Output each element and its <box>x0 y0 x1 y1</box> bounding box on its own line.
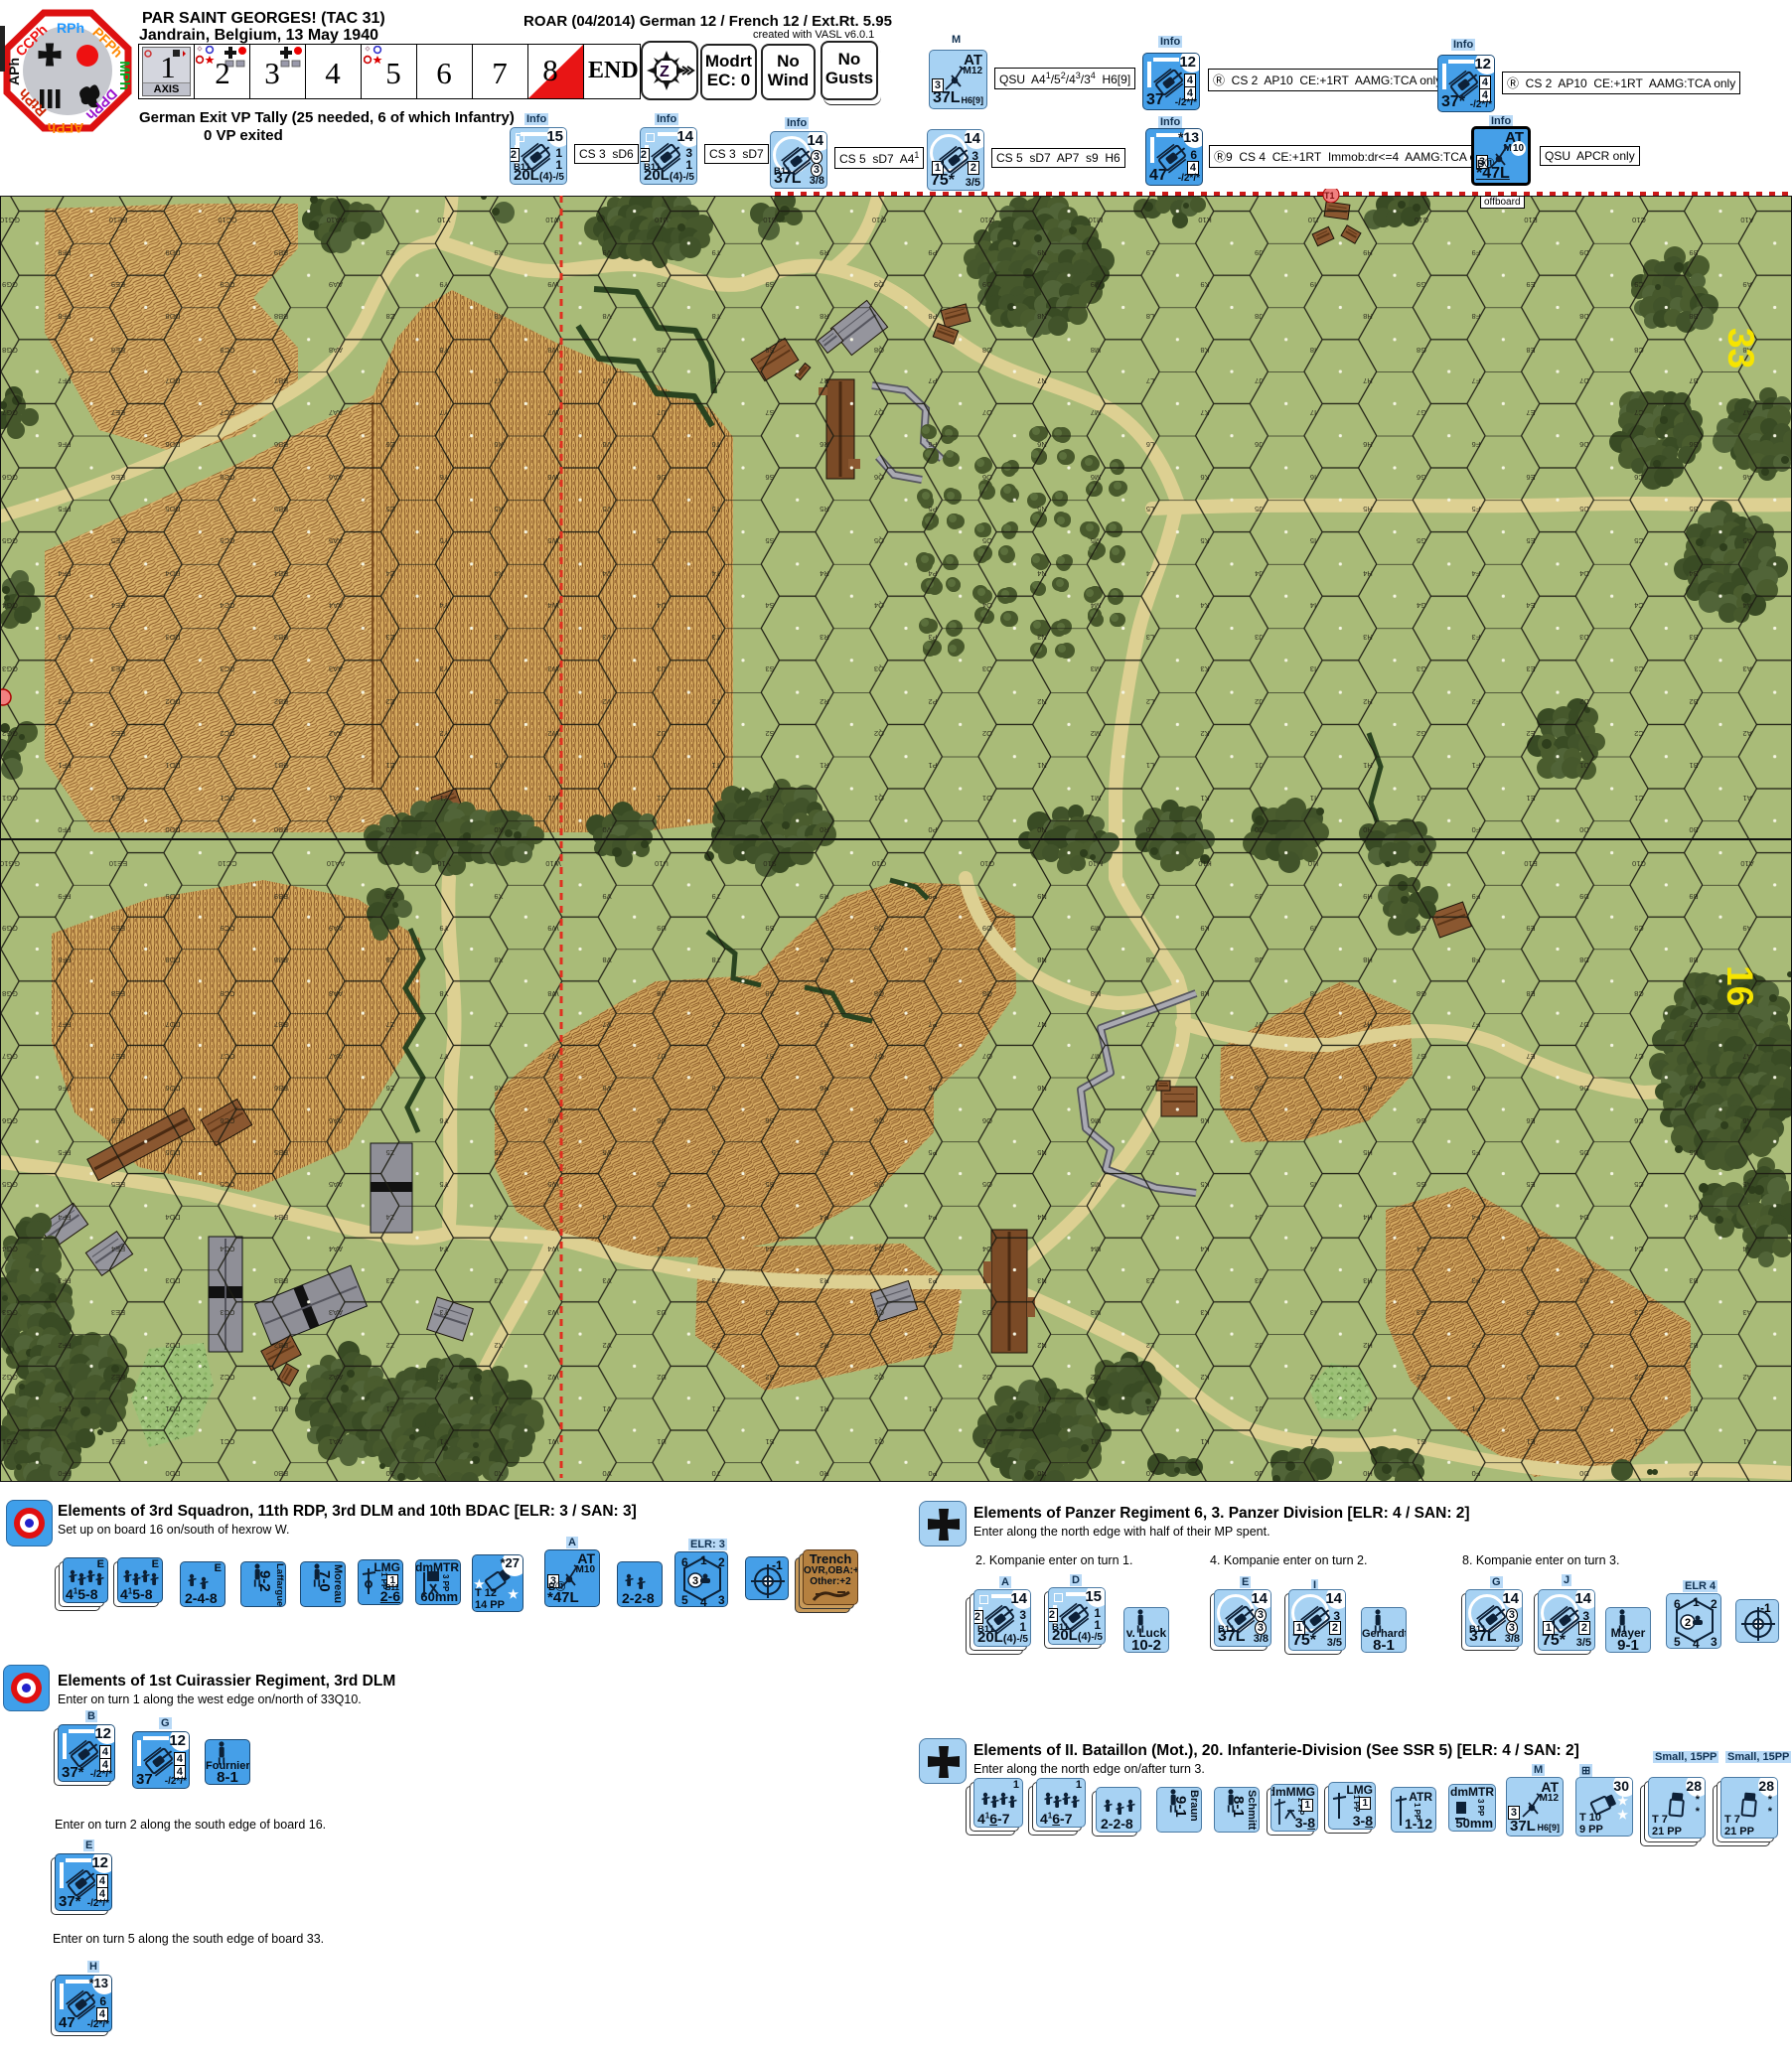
svg-text:K7: K7 <box>1200 408 1209 417</box>
svg-text:M2: M2 <box>1091 1373 1101 1382</box>
svg-text:K4: K4 <box>1200 601 1209 610</box>
svg-text:FF5: FF5 <box>58 505 71 514</box>
svg-text:DD7: DD7 <box>165 1020 180 1029</box>
svg-text:X5: X5 <box>494 505 503 514</box>
svg-text:M1: M1 <box>1091 794 1101 803</box>
svg-text:Q9: Q9 <box>874 280 884 289</box>
svg-text:B3: B3 <box>1689 1276 1698 1285</box>
svg-text:GG2: GG2 <box>2 1373 18 1382</box>
svg-text:U10: U10 <box>655 859 669 868</box>
svg-text:T3: T3 <box>712 633 721 642</box>
svg-text:Z4: Z4 <box>386 1213 395 1222</box>
svg-text:W4: W4 <box>547 601 558 610</box>
svg-text:F3: F3 <box>1472 1276 1481 1285</box>
svg-text:N0: N0 <box>1037 1469 1047 1478</box>
svg-text:P6: P6 <box>928 440 937 449</box>
svg-text:EE10: EE10 <box>109 859 127 868</box>
svg-text:U3: U3 <box>657 1308 667 1317</box>
svg-text:W1: W1 <box>547 1437 558 1446</box>
svg-text:I10: I10 <box>1308 859 1318 868</box>
svg-text:O8: O8 <box>982 989 992 998</box>
svg-text:J0: J0 <box>1255 825 1263 834</box>
svg-text:I8: I8 <box>1310 989 1316 998</box>
svg-text:EE3: EE3 <box>111 664 125 673</box>
svg-text:F6: F6 <box>1472 440 1481 449</box>
svg-text:A7: A7 <box>1742 408 1751 417</box>
svg-text:W4: W4 <box>547 1245 558 1253</box>
svg-text:Z5: Z5 <box>386 1148 395 1157</box>
svg-text:K2: K2 <box>1200 1373 1209 1382</box>
svg-text:CC3: CC3 <box>220 1308 234 1317</box>
svg-text:S5: S5 <box>765 1180 774 1189</box>
svg-text:O4: O4 <box>982 1245 992 1253</box>
svg-text:EE8: EE8 <box>111 989 125 998</box>
svg-text:F4: F4 <box>1472 1213 1481 1222</box>
svg-text:F7: F7 <box>1472 376 1481 385</box>
svg-text:Y3: Y3 <box>439 664 448 673</box>
svg-text:V9: V9 <box>602 248 611 257</box>
svg-text:T6: T6 <box>712 1084 721 1093</box>
svg-text:EE5: EE5 <box>111 536 125 545</box>
svg-text:AA8: AA8 <box>329 989 343 998</box>
svg-text:U4: U4 <box>657 1245 667 1253</box>
svg-text:AA2: AA2 <box>329 729 343 738</box>
svg-text:X9: X9 <box>494 248 503 257</box>
svg-text:M7: M7 <box>1091 408 1101 417</box>
svg-text:BB4: BB4 <box>274 1213 288 1222</box>
svg-text:E7: E7 <box>1526 408 1535 417</box>
svg-text:I4: I4 <box>1310 601 1316 610</box>
svg-text:DD2: DD2 <box>165 697 180 706</box>
svg-text:GG6: GG6 <box>2 1116 18 1125</box>
svg-text:V3: V3 <box>602 1276 611 1285</box>
svg-text:BB3: BB3 <box>274 1276 288 1285</box>
svg-text:2: 2 <box>1685 1617 1691 1629</box>
svg-text:O10: O10 <box>980 216 994 224</box>
svg-text:FF5: FF5 <box>58 1148 71 1157</box>
svg-text:X6: X6 <box>494 440 503 449</box>
svg-text:Y5: Y5 <box>439 1180 448 1189</box>
svg-text:BB1: BB1 <box>274 761 288 770</box>
svg-text:J3: J3 <box>1255 1276 1263 1285</box>
svg-text:F0: F0 <box>1472 825 1481 834</box>
svg-text:H5: H5 <box>1363 505 1373 514</box>
svg-text:U5: U5 <box>657 536 667 545</box>
svg-text:2: 2 <box>718 1555 725 1569</box>
svg-text:A2: A2 <box>1742 729 1751 738</box>
svg-text:W1: W1 <box>547 794 558 803</box>
svg-text:T0: T0 <box>712 1469 721 1478</box>
svg-text:E8: E8 <box>1526 989 1535 998</box>
svg-text:D4: D4 <box>1579 1213 1589 1222</box>
svg-text:A5: A5 <box>1742 536 1751 545</box>
svg-text:R0: R0 <box>820 1469 829 1478</box>
svg-text:J6: J6 <box>1255 1084 1263 1093</box>
svg-text:R5: R5 <box>820 1148 829 1157</box>
svg-text:A9: A9 <box>1742 280 1751 289</box>
svg-text:Y1: Y1 <box>439 1437 448 1446</box>
svg-text:E9: E9 <box>1526 280 1535 289</box>
svg-text:E9: E9 <box>1526 924 1535 933</box>
svg-text:AA10: AA10 <box>327 216 345 224</box>
svg-text:D5: D5 <box>1579 505 1589 514</box>
svg-text:I6: I6 <box>1310 473 1316 482</box>
svg-text:N2: N2 <box>1037 1341 1047 1350</box>
svg-text:V0: V0 <box>602 825 611 834</box>
svg-text:V7: V7 <box>602 376 611 385</box>
svg-text:I2: I2 <box>1310 729 1316 738</box>
svg-text:O7: O7 <box>982 1052 992 1061</box>
svg-text:B6: B6 <box>1689 440 1698 449</box>
svg-text:M8: M8 <box>1091 346 1101 355</box>
svg-text:V6: V6 <box>602 440 611 449</box>
svg-text:J4: J4 <box>1255 1213 1263 1222</box>
svg-text:Q1: Q1 <box>874 1437 884 1446</box>
svg-text:F1: F1 <box>1472 1404 1481 1413</box>
svg-text:D7: D7 <box>1579 376 1589 385</box>
svg-text:K6: K6 <box>1200 473 1209 482</box>
svg-text:K4: K4 <box>1200 1245 1209 1253</box>
svg-text:EE2: EE2 <box>111 729 125 738</box>
svg-text:BB0: BB0 <box>274 1469 288 1478</box>
svg-text:O4: O4 <box>982 601 992 610</box>
svg-text:BB2: BB2 <box>274 697 288 706</box>
svg-text:6: 6 <box>681 1555 688 1569</box>
svg-text:W5: W5 <box>547 536 558 545</box>
svg-text:D9: D9 <box>1579 892 1589 901</box>
svg-text:A6: A6 <box>1742 473 1751 482</box>
svg-text:O5: O5 <box>982 536 992 545</box>
svg-text:F2: F2 <box>1472 1341 1481 1350</box>
svg-text:O7: O7 <box>982 408 992 417</box>
svg-text:A3: A3 <box>1742 1308 1751 1317</box>
svg-text:-1: -1 <box>772 1558 783 1572</box>
svg-text:P3: P3 <box>928 633 937 642</box>
svg-text:X5: X5 <box>494 1148 503 1157</box>
svg-text:F4: F4 <box>1472 569 1481 578</box>
svg-text:K1: K1 <box>1200 1437 1209 1446</box>
svg-text:Z1: Z1 <box>386 1404 395 1413</box>
svg-text:AA6: AA6 <box>329 1116 343 1125</box>
svg-text:G10: G10 <box>1415 859 1428 868</box>
svg-text:GG3: GG3 <box>2 1308 18 1317</box>
svg-text:P2: P2 <box>928 697 937 706</box>
svg-text:V4: V4 <box>602 569 611 578</box>
svg-text:DD4: DD4 <box>165 569 180 578</box>
svg-text:EE3: EE3 <box>111 1308 125 1317</box>
svg-text:L7: L7 <box>1146 1020 1154 1029</box>
svg-text:E8: E8 <box>1526 346 1535 355</box>
svg-text:T8: T8 <box>712 312 721 321</box>
svg-text:EE4: EE4 <box>111 1245 125 1253</box>
svg-text:P4: P4 <box>928 569 937 578</box>
svg-text:W6: W6 <box>547 1116 558 1125</box>
svg-text:GG4: GG4 <box>2 601 18 610</box>
svg-text:3: 3 <box>1711 1635 1717 1649</box>
svg-text:W7: W7 <box>547 1052 558 1061</box>
svg-text:J8: J8 <box>1255 312 1263 321</box>
svg-text:Z3: Z3 <box>386 633 395 642</box>
svg-text:L7: L7 <box>1146 376 1154 385</box>
svg-text:D2: D2 <box>1579 697 1589 706</box>
svg-text:FF9: FF9 <box>58 892 71 901</box>
svg-text:DD6: DD6 <box>165 1084 180 1093</box>
svg-text:H2: H2 <box>1363 1341 1373 1350</box>
svg-text:N3: N3 <box>1037 633 1047 642</box>
svg-text:EE5: EE5 <box>111 1180 125 1189</box>
svg-text:AA4: AA4 <box>329 601 343 610</box>
svg-text:B1: B1 <box>1689 1404 1698 1413</box>
svg-text:H8: H8 <box>1363 312 1373 321</box>
svg-text:Z9: Z9 <box>386 892 395 901</box>
svg-text:M3: M3 <box>1091 664 1101 673</box>
svg-text:X2: X2 <box>494 697 503 706</box>
svg-text:L6: L6 <box>1146 440 1154 449</box>
svg-text:Y6: Y6 <box>439 473 448 482</box>
svg-text:R9: R9 <box>820 892 829 901</box>
svg-text:F9: F9 <box>1472 248 1481 257</box>
svg-text:P5: P5 <box>928 505 937 514</box>
svg-text:S7: S7 <box>765 1052 774 1061</box>
svg-text:V1: V1 <box>602 1404 611 1413</box>
svg-text:R8: R8 <box>820 956 829 964</box>
svg-text:DD8: DD8 <box>165 956 180 964</box>
svg-text:X3: X3 <box>494 1276 503 1285</box>
svg-text:G9: G9 <box>1417 924 1426 933</box>
svg-text:P5: P5 <box>928 1148 937 1157</box>
svg-text:Z2: Z2 <box>386 697 395 706</box>
svg-text:B5: B5 <box>1689 505 1698 514</box>
svg-text:N8: N8 <box>1037 312 1047 321</box>
svg-text:Q5: Q5 <box>874 1180 884 1189</box>
svg-text:M5: M5 <box>1091 1180 1101 1189</box>
svg-text:B0: B0 <box>1689 825 1698 834</box>
svg-text:G4: G4 <box>1417 601 1426 610</box>
svg-text:Y8: Y8 <box>439 346 448 355</box>
svg-text:AFPh: AFPh <box>48 120 84 133</box>
svg-text:J1: J1 <box>1255 761 1263 770</box>
svg-text:W3: W3 <box>547 664 558 673</box>
svg-text:AA1: AA1 <box>329 794 343 803</box>
svg-text:V1: V1 <box>602 761 611 770</box>
svg-text:GG8: GG8 <box>2 989 18 998</box>
svg-text:T7: T7 <box>712 1020 721 1029</box>
svg-text:V5: V5 <box>602 1148 611 1157</box>
svg-text:G3: G3 <box>1417 664 1426 673</box>
svg-text:AA9: AA9 <box>329 280 343 289</box>
svg-text:DD3: DD3 <box>165 1276 180 1285</box>
svg-text:D4: D4 <box>1579 569 1589 578</box>
svg-text:S4: S4 <box>765 1245 774 1253</box>
svg-text:EE9: EE9 <box>111 280 125 289</box>
svg-text:S8: S8 <box>765 346 774 355</box>
svg-text:F9: F9 <box>1472 892 1481 901</box>
svg-text:E6: E6 <box>1526 1116 1535 1125</box>
svg-text:K6: K6 <box>1200 1116 1209 1125</box>
svg-text:CC10: CC10 <box>218 216 236 224</box>
svg-text:P4: P4 <box>928 1213 937 1222</box>
svg-text:I1: I1 <box>1310 1437 1316 1446</box>
svg-text:Z5: Z5 <box>386 505 395 514</box>
svg-text:EE6: EE6 <box>111 473 125 482</box>
svg-text:L5: L5 <box>1146 505 1154 514</box>
svg-text:DD3: DD3 <box>165 633 180 642</box>
svg-text:2: 2 <box>1711 1597 1717 1611</box>
svg-text:GG9: GG9 <box>2 280 18 289</box>
svg-text:D0: D0 <box>1579 1469 1589 1478</box>
svg-text:D2: D2 <box>1579 1341 1589 1350</box>
svg-text:N5: N5 <box>1037 1148 1047 1157</box>
svg-text:S6: S6 <box>765 1116 774 1125</box>
svg-text:M6: M6 <box>1091 473 1101 482</box>
svg-text:CC1: CC1 <box>220 1437 234 1446</box>
svg-text:U6: U6 <box>657 473 667 482</box>
svg-text:W9: W9 <box>547 280 558 289</box>
svg-text:O8: O8 <box>982 346 992 355</box>
svg-text:AA5: AA5 <box>329 536 343 545</box>
svg-text:S1: S1 <box>765 794 774 803</box>
svg-text:S2: S2 <box>765 1373 774 1382</box>
svg-text:C5: C5 <box>1634 536 1644 545</box>
svg-text:G8: G8 <box>1417 346 1426 355</box>
svg-text:K10: K10 <box>1198 216 1211 224</box>
svg-text:BB5: BB5 <box>274 1148 288 1157</box>
svg-text:L9: L9 <box>1146 248 1154 257</box>
svg-text:M3: M3 <box>1091 1308 1101 1317</box>
svg-text:F7: F7 <box>1472 1020 1481 1029</box>
svg-text:V4: V4 <box>602 1213 611 1222</box>
svg-text:V2: V2 <box>602 697 611 706</box>
svg-text:N3: N3 <box>1037 1276 1047 1285</box>
svg-text:FF6: FF6 <box>58 1084 71 1093</box>
svg-text:G4: G4 <box>1417 1245 1426 1253</box>
svg-text:C2: C2 <box>1634 729 1644 738</box>
svg-text:Z3: Z3 <box>386 1276 395 1285</box>
svg-text:D8: D8 <box>1579 312 1589 321</box>
svg-text:M2: M2 <box>1091 729 1101 738</box>
svg-text:1: 1 <box>700 1553 707 1567</box>
svg-text:N1: N1 <box>1037 761 1047 770</box>
svg-text:F5: F5 <box>1472 505 1481 514</box>
svg-text:H6: H6 <box>1363 1084 1373 1093</box>
svg-text:W3: W3 <box>547 1308 558 1317</box>
svg-text:Y10: Y10 <box>437 859 450 868</box>
svg-text:B9: B9 <box>1689 248 1698 257</box>
svg-text:H7: H7 <box>1363 376 1373 385</box>
svg-text:BB0: BB0 <box>274 825 288 834</box>
svg-text:C4: C4 <box>1634 1245 1644 1253</box>
svg-text:I7: I7 <box>1310 1052 1316 1061</box>
svg-text:1: 1 <box>1693 1595 1700 1609</box>
svg-text:L1: L1 <box>1146 761 1154 770</box>
svg-text:Q1: Q1 <box>874 794 884 803</box>
svg-text:D1: D1 <box>1579 1404 1589 1413</box>
svg-text:Z8: Z8 <box>386 956 395 964</box>
svg-text:CC6: CC6 <box>220 473 234 482</box>
svg-text:I8: I8 <box>1310 346 1316 355</box>
svg-text:V0: V0 <box>602 1469 611 1478</box>
svg-text:M8: M8 <box>1091 989 1101 998</box>
svg-text:FF8: FF8 <box>58 956 71 964</box>
svg-text:K2: K2 <box>1200 729 1209 738</box>
svg-text:N8: N8 <box>1037 956 1047 964</box>
svg-text:D5: D5 <box>1579 1148 1589 1157</box>
svg-text:V6: V6 <box>602 1084 611 1093</box>
svg-text:M10: M10 <box>1089 859 1104 868</box>
svg-text:Y7: Y7 <box>439 408 448 417</box>
svg-text:EE10: EE10 <box>109 216 127 224</box>
svg-text:U3: U3 <box>657 664 667 673</box>
svg-text:U1: U1 <box>657 1437 667 1446</box>
svg-text:X4: X4 <box>494 1213 503 1222</box>
svg-text:BB7: BB7 <box>274 1020 288 1029</box>
svg-text:P3: P3 <box>928 1276 937 1285</box>
svg-text:FF7: FF7 <box>58 376 71 385</box>
svg-text:5: 5 <box>681 1593 688 1607</box>
svg-text:DD9: DD9 <box>165 892 180 901</box>
svg-text:F1: F1 <box>1472 761 1481 770</box>
svg-text:C7: C7 <box>1634 1052 1644 1061</box>
svg-text:H7: H7 <box>1363 1020 1373 1029</box>
svg-text:I7: I7 <box>1310 408 1316 417</box>
svg-text:Z6: Z6 <box>386 440 395 449</box>
svg-text:N7: N7 <box>1037 1020 1047 1029</box>
svg-text:DD4: DD4 <box>165 1213 180 1222</box>
svg-text:N6: N6 <box>1037 1084 1047 1093</box>
svg-text:X0: X0 <box>494 825 503 834</box>
svg-text:BB1: BB1 <box>274 1404 288 1413</box>
svg-text:N1: N1 <box>1037 1404 1047 1413</box>
svg-text:CC9: CC9 <box>220 924 234 933</box>
svg-text:M7: M7 <box>1091 1052 1101 1061</box>
svg-text:N0: N0 <box>1037 825 1047 834</box>
svg-text:G5: G5 <box>1417 1180 1426 1189</box>
svg-text:GG10: GG10 <box>0 859 20 868</box>
svg-text:16: 16 <box>1719 965 1760 1006</box>
svg-text:Z0: Z0 <box>386 825 395 834</box>
svg-text:H4: H4 <box>1363 569 1373 578</box>
svg-text:I9: I9 <box>1310 924 1316 933</box>
svg-text:I5: I5 <box>1310 536 1316 545</box>
svg-text:O5: O5 <box>982 1180 992 1189</box>
svg-text:R2: R2 <box>820 1341 829 1350</box>
svg-text:Q8: Q8 <box>874 346 884 355</box>
svg-text:B1: B1 <box>1689 761 1698 770</box>
svg-text:D7: D7 <box>1579 1020 1589 1029</box>
svg-text:E4: E4 <box>1526 1245 1535 1253</box>
svg-text:E5: E5 <box>1526 536 1535 545</box>
svg-text:AA3: AA3 <box>329 664 343 673</box>
svg-text:F8: F8 <box>1472 956 1481 964</box>
svg-text:K5: K5 <box>1200 1180 1209 1189</box>
svg-text:L1: L1 <box>1146 1404 1154 1413</box>
svg-text:G9: G9 <box>1417 280 1426 289</box>
svg-text:S10: S10 <box>763 859 776 868</box>
svg-text:K8: K8 <box>1200 346 1209 355</box>
svg-text:G2: G2 <box>1417 1373 1426 1382</box>
svg-text:BB8: BB8 <box>274 956 288 964</box>
svg-text:M4: M4 <box>1091 1245 1101 1253</box>
svg-text:R3: R3 <box>820 1276 829 1285</box>
svg-text:Y3: Y3 <box>439 1308 448 1317</box>
svg-text:L0: L0 <box>1146 1469 1154 1478</box>
svg-text:CC4: CC4 <box>220 1245 234 1253</box>
svg-text:A5: A5 <box>1742 1180 1751 1189</box>
svg-text:V8: V8 <box>602 312 611 321</box>
svg-text:W9: W9 <box>547 924 558 933</box>
svg-text:BB4: BB4 <box>274 569 288 578</box>
svg-text:G8: G8 <box>1417 989 1426 998</box>
